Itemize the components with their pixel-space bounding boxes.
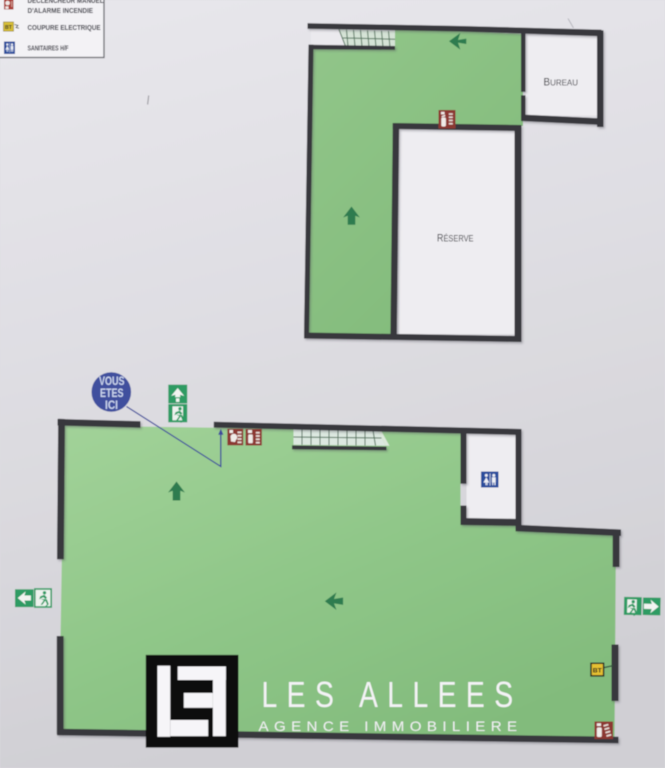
svg-text:BUREAU: BUREAU (544, 76, 579, 88)
svg-text:COUPURE ELECTRIQUE: COUPURE ELECTRIQUE (28, 25, 101, 32)
svg-text:BT: BT (5, 25, 13, 31)
svg-text:LES ALLEES: LES ALLEES (262, 674, 523, 715)
svg-text:D'ALARME INCENDIE: D'ALARME INCENDIE (28, 8, 94, 15)
svg-text:ICI: ICI (105, 398, 118, 412)
svg-text:SANITAIRES H/F: SANITAIRES H/F (28, 46, 70, 53)
svg-text:BT: BT (593, 668, 603, 675)
svg-text:AGENCE IMMOBILIERE: AGENCE IMMOBILIERE (259, 718, 523, 734)
svg-text:DÉCLENCHEUR MANUEL: DÉCLENCHEUR MANUEL (28, 0, 105, 5)
svg-text:RÉSERVE: RÉSERVE (437, 233, 474, 245)
